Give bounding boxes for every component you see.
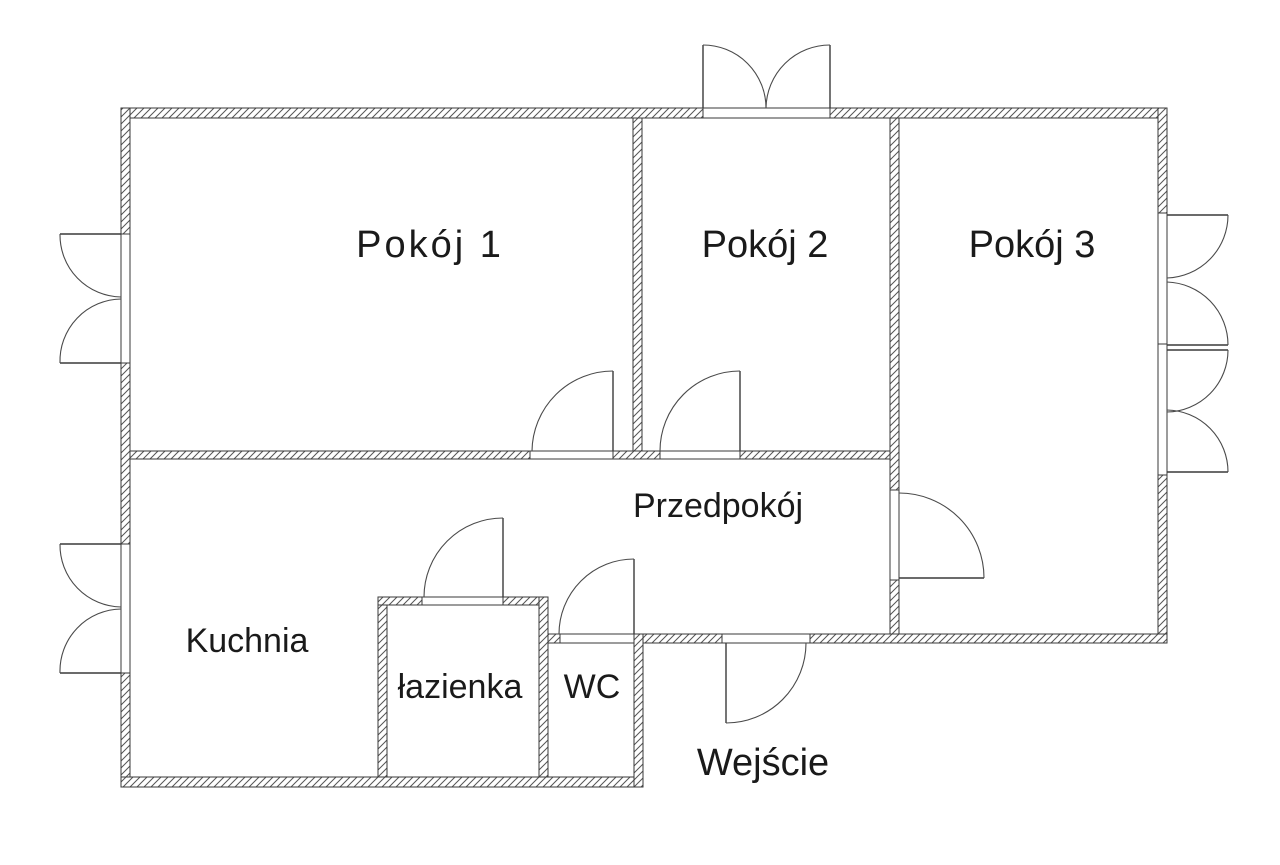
wall-top-left-segment — [121, 108, 703, 118]
wall-top-right-segment — [830, 108, 1167, 118]
door-threshold-bathroom — [422, 597, 503, 605]
window-frame-room3-lower — [1158, 344, 1167, 475]
label-entrance: Wejście — [697, 742, 829, 784]
wall-divider-room3-lower — [890, 580, 899, 634]
wall-right-upper — [1158, 108, 1167, 213]
balcony-door-threshold — [703, 108, 830, 118]
door-threshold-entrance — [722, 634, 810, 643]
wall-bathroom-top-a — [378, 597, 422, 605]
label-hallway: Przedpokój — [633, 487, 803, 525]
wall-mid-c — [740, 451, 899, 459]
door-threshold-room3 — [890, 490, 899, 580]
wall-right-lower — [1158, 475, 1167, 643]
wall-lower-right-a — [643, 634, 722, 643]
door-room2 — [660, 371, 740, 451]
door-room1 — [532, 371, 613, 451]
wall-mid-a — [130, 451, 530, 459]
floor-plan-drawing: Pokój 1 Pokój 2 Pokój 3 Przedpokój Kuchn… — [0, 0, 1280, 865]
door-room3 — [899, 493, 984, 578]
balcony-double-door — [703, 45, 830, 108]
window-room3-upper — [1167, 215, 1228, 345]
label-room3: Pokój 3 — [969, 224, 1096, 266]
wall-bottom — [121, 777, 643, 787]
wall-bathroom-right — [539, 597, 548, 777]
window-room1 — [60, 234, 121, 363]
label-room2: Pokój 2 — [702, 224, 829, 266]
window-room3-lower — [1167, 350, 1228, 472]
wall-bathroom-left — [378, 597, 387, 777]
wall-mid-b — [613, 451, 660, 459]
window-frame-room1 — [121, 234, 130, 363]
door-wc — [559, 559, 634, 634]
wall-wc-top — [548, 634, 560, 643]
frames — [121, 108, 1167, 673]
label-bathroom: łazienka — [398, 668, 523, 706]
door-threshold-room2 — [660, 451, 740, 459]
wall-left-lower — [121, 673, 130, 787]
window-frame-room3-upper — [1158, 213, 1167, 344]
label-room1: Pokój 1 — [356, 224, 504, 266]
wall-divider-room1-room2 — [633, 118, 642, 451]
door-threshold-room1 — [530, 451, 613, 459]
door-entrance — [726, 643, 806, 723]
window-frame-kitchen — [121, 544, 130, 673]
wall-left-middle — [121, 363, 130, 544]
door-threshold-wc — [560, 634, 634, 643]
wall-lower-right-b — [810, 634, 1167, 643]
label-wc: WC — [564, 668, 621, 706]
wall-divider-room3-upper — [890, 118, 899, 490]
walls — [121, 108, 1167, 787]
door-bathroom — [424, 518, 503, 597]
window-kitchen — [60, 544, 121, 673]
label-kitchen: Kuchnia — [186, 622, 309, 660]
wall-left-upper — [121, 108, 130, 234]
floor-plan-canvas: Pokój 1 Pokój 2 Pokój 3 Przedpokój Kuchn… — [0, 0, 1280, 865]
wall-wc-right — [634, 634, 643, 787]
